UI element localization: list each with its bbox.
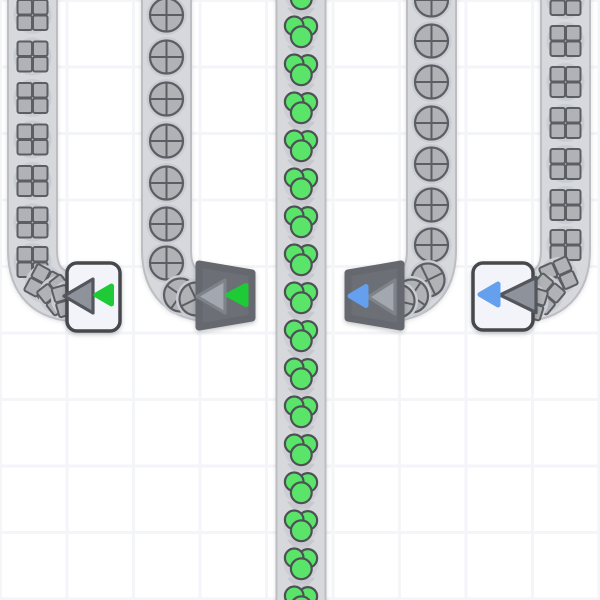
item-quad-square [547,22,585,60]
item-berry-cluster [284,508,319,543]
item-quad-square [14,121,52,159]
item-quad-square [14,38,52,76]
item-quad-square [547,63,585,101]
item-berry-cluster [284,432,319,467]
item-berry-cluster [284,52,319,87]
item-berry-cluster [284,14,319,49]
item-berry-cluster [284,356,319,391]
item-berry-cluster [284,166,319,201]
device-filter-1[interactable] [64,263,120,331]
item-quad-circle [147,79,187,119]
item-quad-circle [147,121,187,161]
item-berry-cluster [284,280,319,315]
item-quad-square [14,0,52,34]
item-quad-square [14,79,52,117]
item-quad-square [14,162,52,200]
item-quad-circle [412,185,452,225]
game-world [0,0,600,600]
item-berry-cluster [284,90,319,125]
item-quad-circle [147,163,187,203]
item-berry-cluster [284,470,319,505]
item-quad-square [14,204,52,242]
device-filter-4[interactable] [473,263,536,330]
item-berry-cluster [284,204,319,239]
item-quad-circle [412,225,452,265]
item-quad-circle [412,21,452,61]
item-quad-circle [412,144,452,184]
game-scene [0,0,600,600]
conveyor-belt-3[interactable] [284,0,319,600]
item-berry-cluster [284,318,319,353]
item-berry-cluster [284,242,319,277]
item-quad-circle [147,204,187,244]
item-quad-square [547,104,585,142]
item-quad-square [547,186,585,224]
item-berry-cluster [284,546,319,581]
item-quad-circle [147,37,187,77]
item-quad-circle [412,62,452,102]
item-quad-square [547,145,585,183]
device-filter-2[interactable] [197,264,252,327]
item-berry-cluster [284,128,319,163]
item-quad-circle [412,103,452,143]
item-berry-cluster [284,394,319,429]
device-filter-3[interactable] [348,264,401,327]
